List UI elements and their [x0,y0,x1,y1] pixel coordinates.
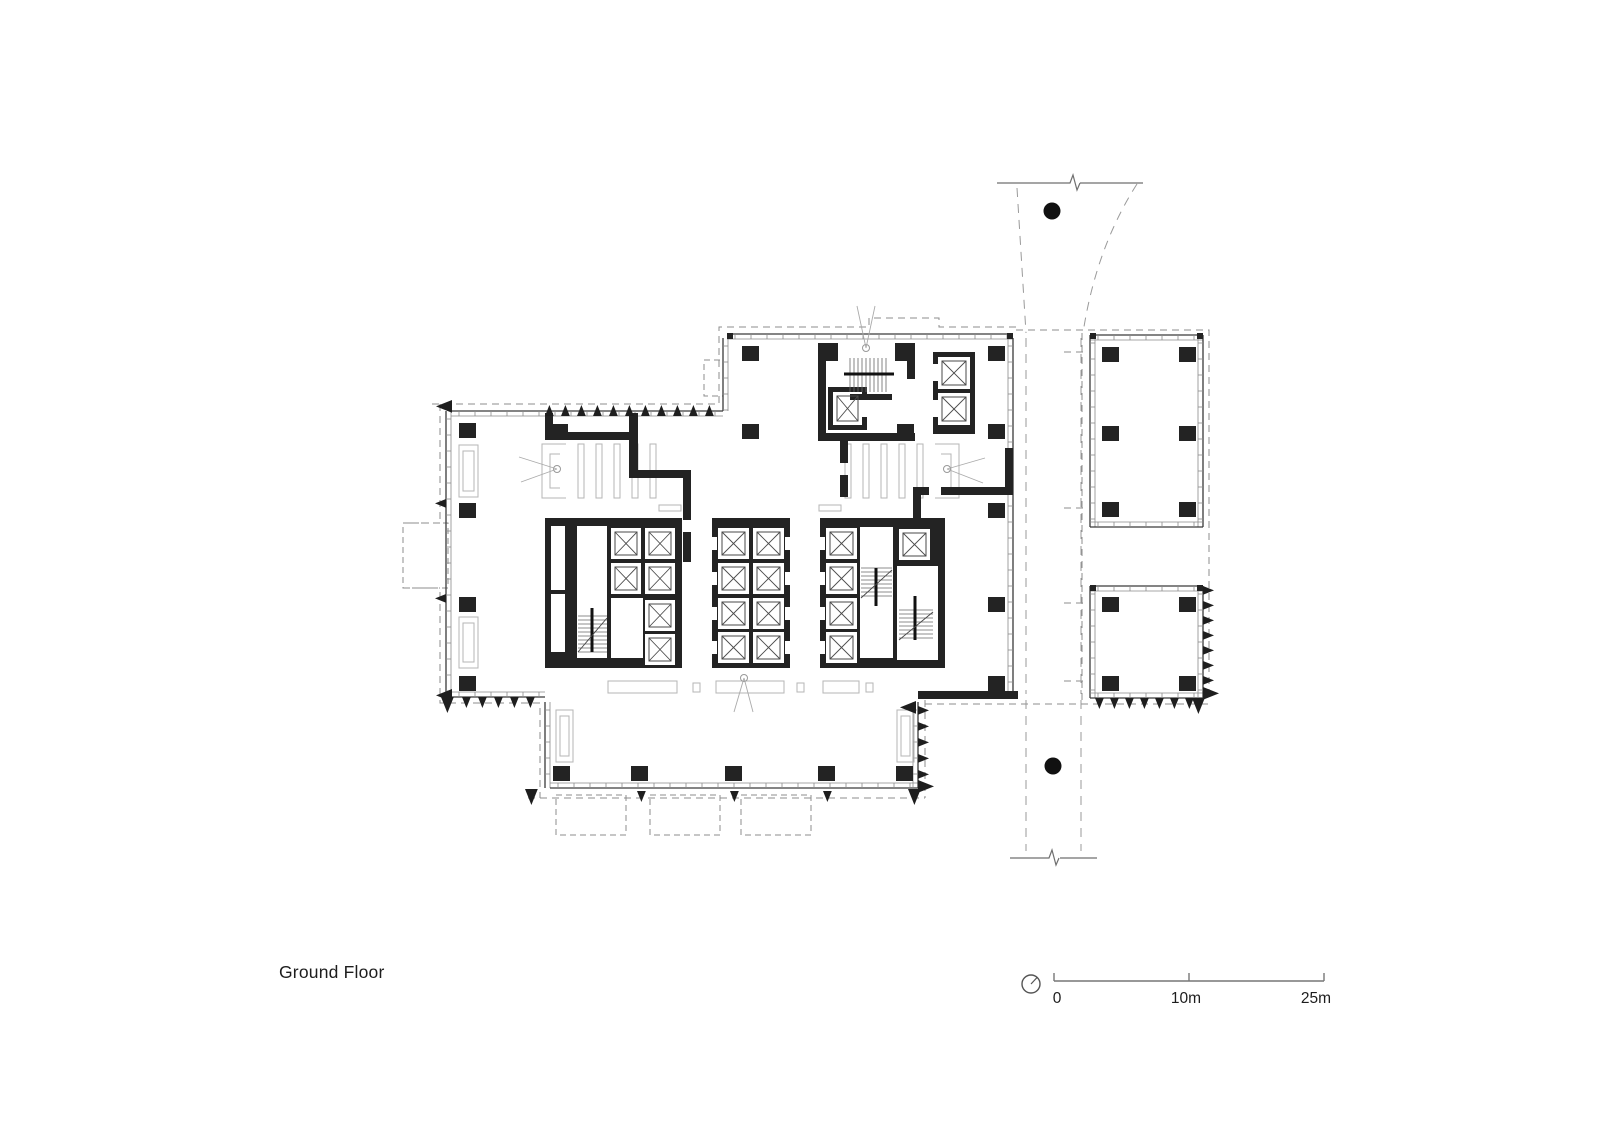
tree-icons [1044,203,1062,775]
floor-plan-svg: 0 10m 25m [0,0,1600,1132]
section-break-icon [1066,175,1080,190]
drawing-sheet: 0 10m 25m Ground Floor [0,0,1600,1132]
section-break-icon [1046,850,1059,865]
scale-label-10m: 10m [1171,990,1201,1007]
site-boundary-dashed [403,318,1209,798]
scale-label-25m: 25m [1301,990,1331,1007]
service-cores [545,352,975,668]
scale-bar: 0 10m 25m [1022,973,1331,1007]
plan-title: Ground Floor [279,962,385,983]
road [997,175,1143,865]
north-indicator-needle [1031,977,1038,984]
scale-label-0: 0 [1053,990,1062,1007]
